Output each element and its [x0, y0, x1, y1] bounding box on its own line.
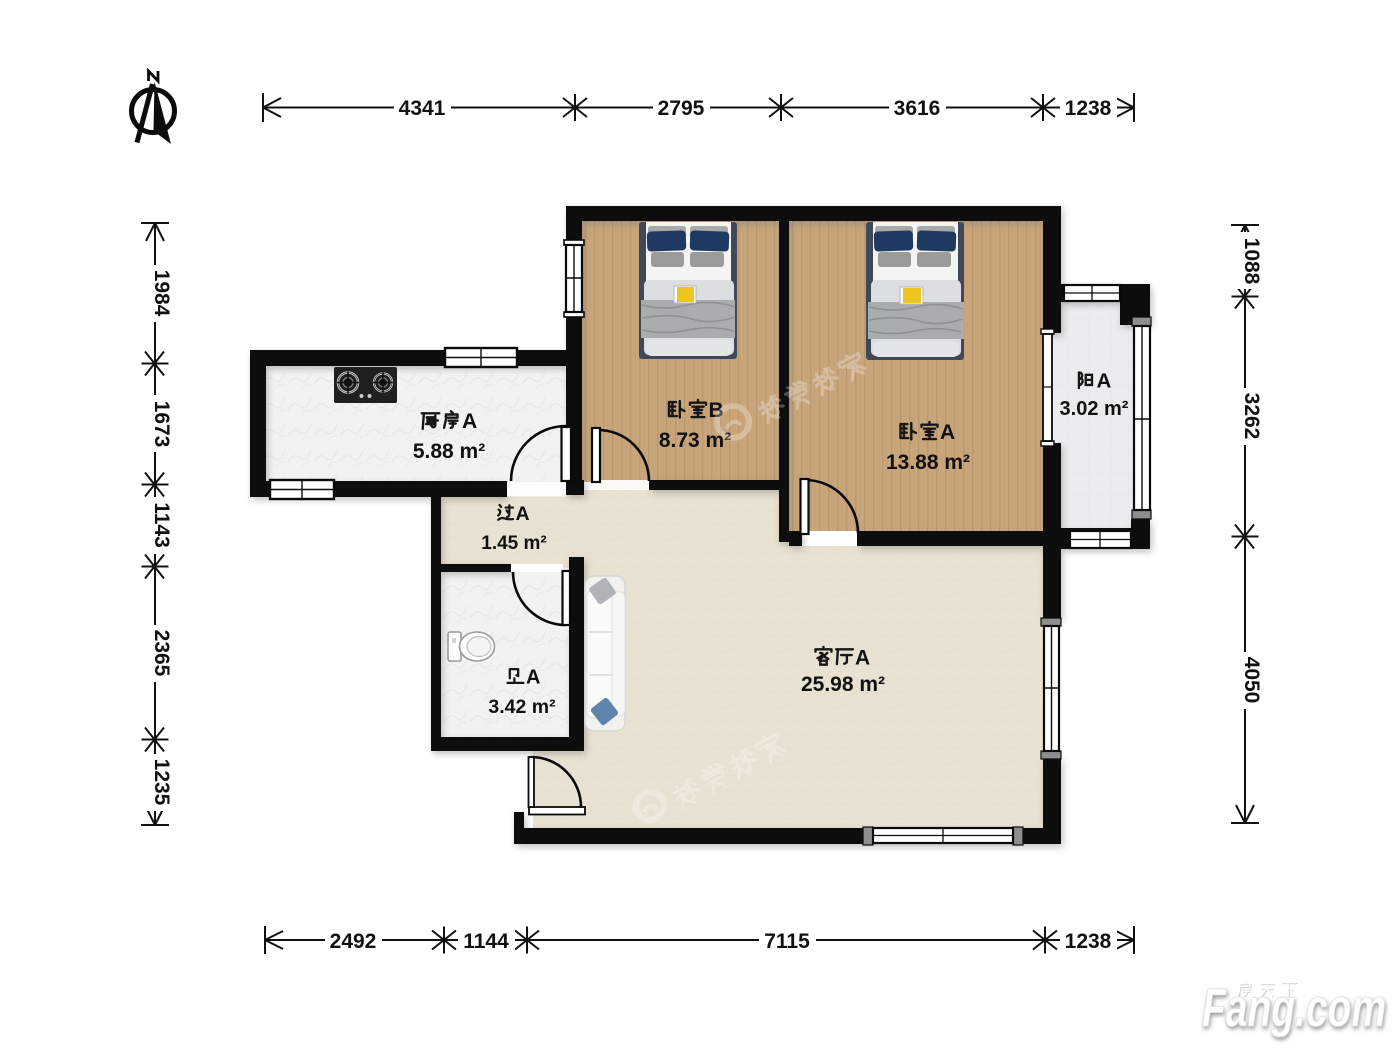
svg-text:A: A [855, 647, 870, 670]
svg-text:5.88 m²: 5.88 m² [413, 440, 485, 463]
svg-text:3.02 m²: 3.02 m² [1060, 398, 1129, 420]
svg-text:1673: 1673 [150, 401, 173, 448]
svg-text:2492: 2492 [330, 930, 377, 953]
svg-text:1235: 1235 [150, 759, 173, 806]
svg-text:1238: 1238 [1065, 930, 1112, 953]
svg-text:4341: 4341 [399, 97, 446, 120]
svg-text:1088: 1088 [1240, 238, 1263, 285]
svg-text:7115: 7115 [764, 930, 810, 953]
svg-text:2365: 2365 [150, 630, 173, 677]
svg-text:25.98 m²: 25.98 m² [801, 673, 885, 696]
svg-text:1.45 m²: 1.45 m² [481, 533, 546, 554]
svg-text:1238: 1238 [1065, 97, 1112, 120]
svg-text:1143: 1143 [150, 502, 173, 548]
svg-text:3262: 3262 [1240, 393, 1263, 440]
svg-text:1144: 1144 [463, 930, 509, 953]
svg-text:A: A [516, 503, 530, 525]
svg-text:13.88 m²: 13.88 m² [886, 451, 970, 474]
svg-text:1984: 1984 [150, 270, 173, 317]
svg-text:A: A [1097, 370, 1112, 393]
svg-text:4050: 4050 [1240, 657, 1263, 704]
svg-text:3.42 m²: 3.42 m² [488, 696, 556, 718]
svg-text:A: A [526, 667, 540, 689]
svg-text:Fang.com: Fang.com [1202, 978, 1386, 1038]
svg-text:A: A [462, 410, 477, 433]
svg-text:2795: 2795 [658, 97, 705, 120]
svg-text:A: A [940, 421, 955, 444]
svg-text:3616: 3616 [894, 97, 941, 120]
